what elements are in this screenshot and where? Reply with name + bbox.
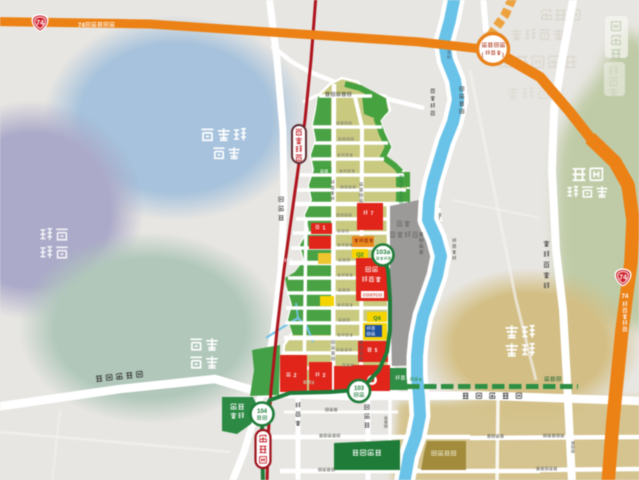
svg-text:74: 74 [78, 23, 85, 29]
svg-text:Q4: Q4 [373, 316, 381, 322]
svg-text:1: 1 [323, 226, 326, 232]
svg-text:2: 2 [294, 373, 297, 379]
svg-text:5: 5 [375, 348, 378, 354]
svg-text:COSTCO: COSTCO [363, 293, 383, 298]
svg-text:Q2: Q2 [356, 253, 363, 259]
svg-text:7: 7 [371, 211, 374, 217]
svg-text:74: 74 [36, 20, 44, 27]
svg-text:103: 103 [354, 386, 365, 392]
svg-text:74: 74 [619, 275, 627, 282]
svg-text:104: 104 [257, 409, 268, 415]
svg-text:2: 2 [323, 373, 326, 379]
svg-text:103a: 103a [376, 249, 391, 256]
svg-text:74: 74 [622, 294, 629, 300]
